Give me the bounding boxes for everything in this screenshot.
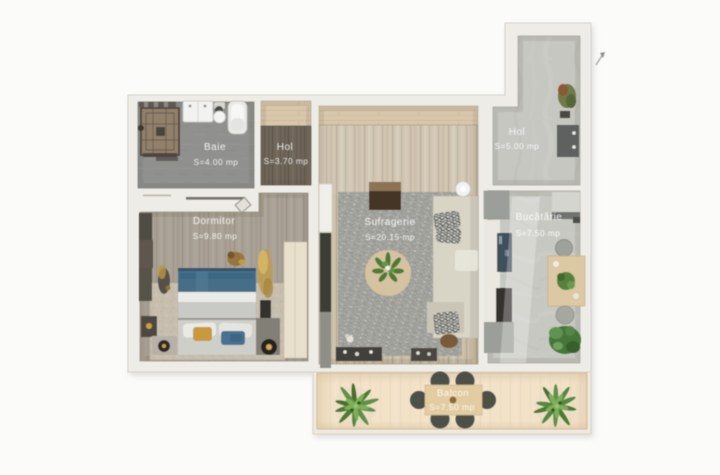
svg-text:S=3.70 mp: S=3.70 mp	[264, 156, 309, 166]
svg-text:Balcon: Balcon	[437, 388, 469, 399]
svg-text:S=4.00 mp: S=4.00 mp	[194, 157, 239, 167]
svg-text:Hol: Hol	[277, 142, 294, 153]
svg-text:Baie: Baie	[204, 142, 226, 153]
svg-text:S=7.50 mp: S=7.50 mp	[516, 228, 561, 238]
svg-text:S=20.15 mp: S=20.15 mp	[365, 232, 415, 242]
svg-text:Sufragerie: Sufragerie	[364, 217, 415, 228]
svg-text:S=9.80 mp: S=9.80 mp	[193, 231, 238, 241]
svg-text:S=7.50 mp: S=7.50 mp	[429, 402, 475, 412]
svg-text:Hol: Hol	[509, 127, 526, 138]
svg-text:S=5.00 mp: S=5.00 mp	[495, 141, 540, 151]
svg-text:Bucătărie: Bucătărie	[516, 212, 563, 223]
svg-text:Dormitor: Dormitor	[193, 216, 236, 227]
